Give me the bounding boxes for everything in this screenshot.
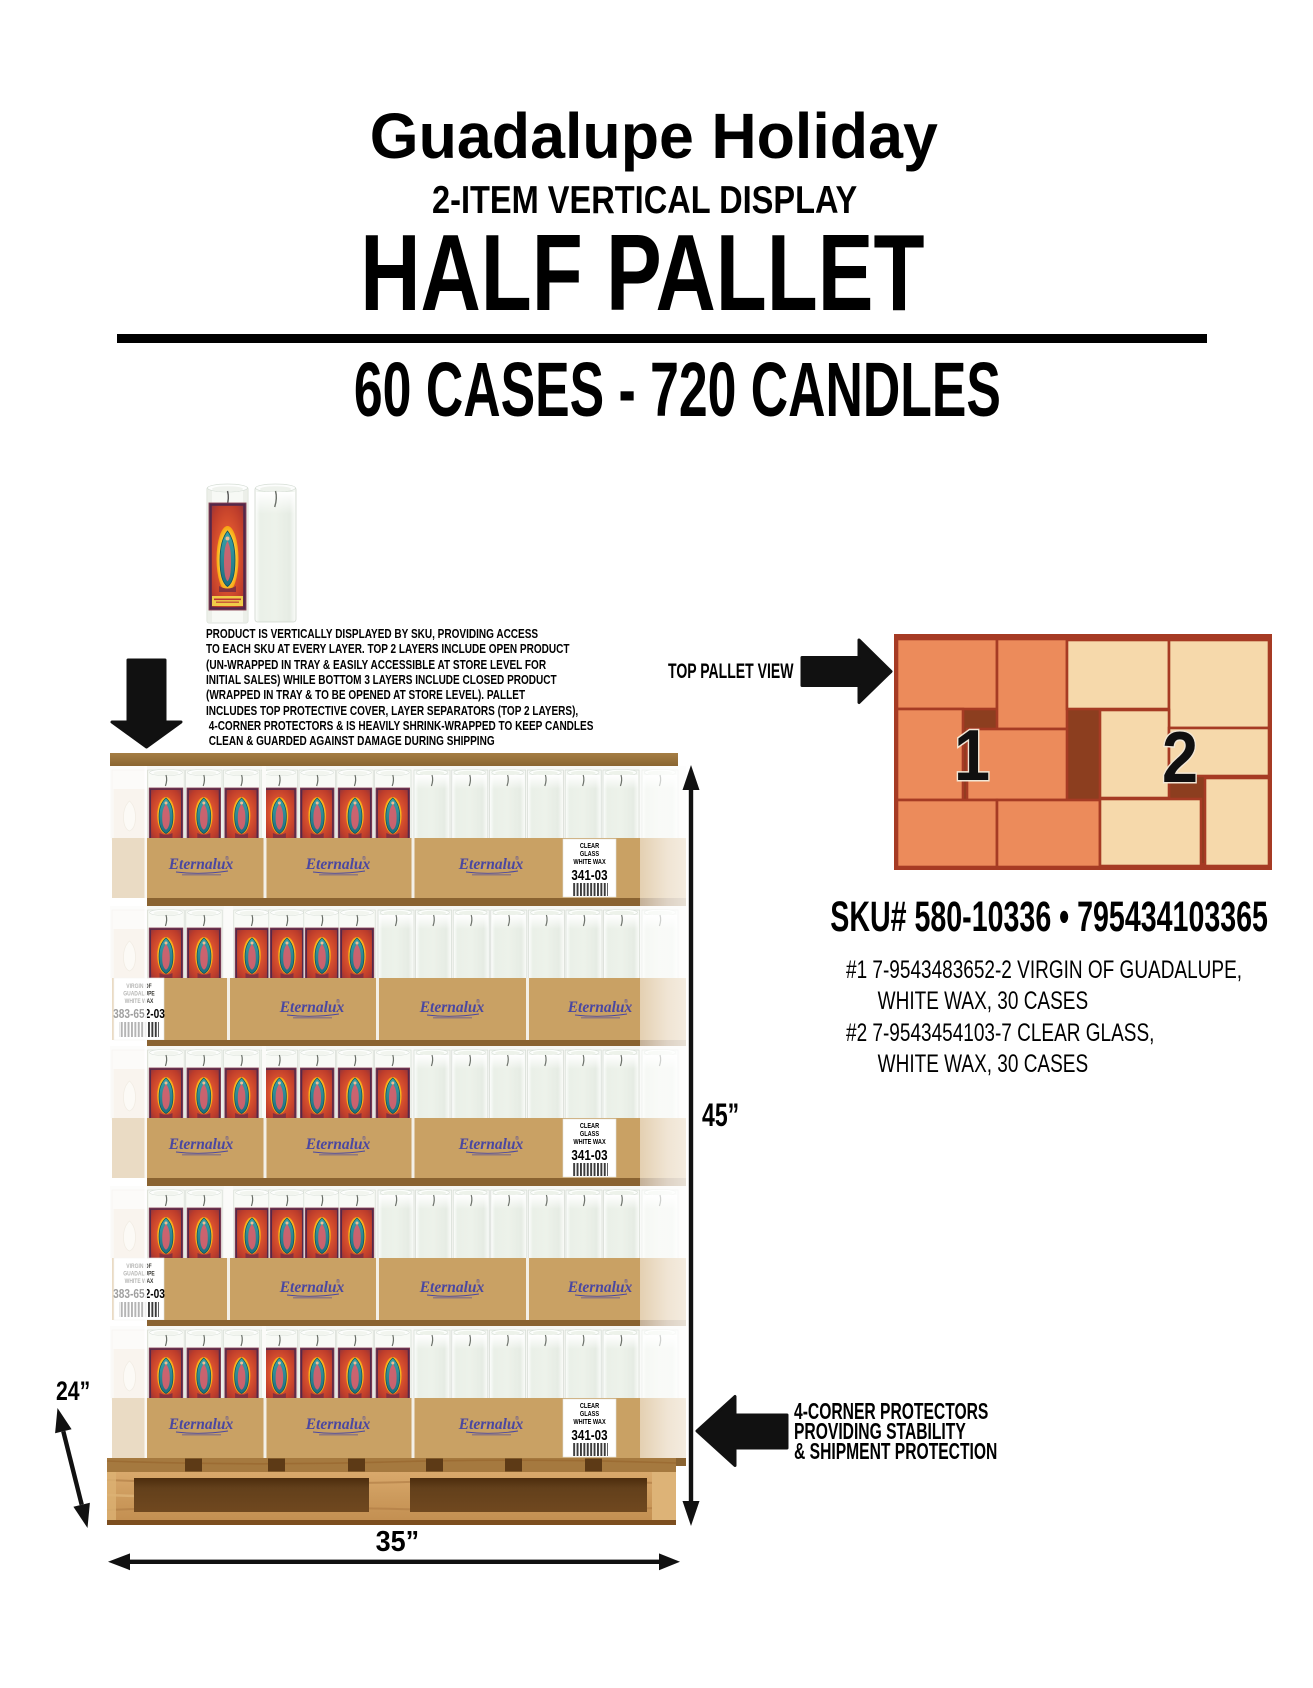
svg-text:Eternalux: Eternalux — [305, 1136, 371, 1153]
svg-text:1: 1 — [954, 715, 990, 796]
svg-text:Eternalux: Eternalux — [305, 856, 371, 873]
svg-text:WHITE WAX: WHITE WAX — [573, 1418, 606, 1426]
svg-text:Eternalux: Eternalux — [168, 856, 234, 873]
svg-text:®: ® — [362, 1135, 366, 1142]
svg-text:Eternalux: Eternalux — [279, 1279, 345, 1296]
svg-text:Eternalux: Eternalux — [419, 1279, 485, 1296]
svg-text:GLASS: GLASS — [580, 1130, 600, 1138]
svg-text:®: ® — [225, 1415, 229, 1422]
svg-text:GLASS: GLASS — [580, 850, 600, 858]
svg-text:®: ® — [362, 855, 366, 862]
svg-text:Eternalux: Eternalux — [567, 1279, 633, 1296]
svg-text:®: ® — [225, 1135, 229, 1142]
svg-text:Eternalux: Eternalux — [567, 999, 633, 1016]
svg-text:GLASS: GLASS — [580, 1410, 600, 1418]
svg-text:Eternalux: Eternalux — [168, 1136, 234, 1153]
svg-text:®: ® — [624, 998, 628, 1005]
svg-text:®: ® — [336, 1278, 340, 1285]
svg-text:341-03: 341-03 — [571, 1147, 607, 1164]
svg-text:®: ® — [515, 1135, 519, 1142]
svg-text:Eternalux: Eternalux — [305, 1416, 371, 1433]
svg-text:Eternalux: Eternalux — [458, 1136, 524, 1153]
svg-text:Eternalux: Eternalux — [458, 1416, 524, 1433]
svg-text:CLEAR: CLEAR — [580, 1402, 600, 1410]
svg-text:®: ® — [225, 855, 229, 862]
svg-text:®: ® — [624, 1278, 628, 1285]
svg-text:Eternalux: Eternalux — [458, 856, 524, 873]
svg-text:Eternalux: Eternalux — [419, 999, 485, 1016]
svg-text:Eternalux: Eternalux — [168, 1416, 234, 1433]
svg-text:341-03: 341-03 — [571, 1427, 607, 1444]
svg-text:®: ® — [515, 855, 519, 862]
svg-text:®: ® — [336, 998, 340, 1005]
svg-text:2: 2 — [1162, 717, 1198, 798]
svg-text:CLEAR: CLEAR — [580, 1122, 600, 1130]
svg-text:®: ® — [476, 998, 480, 1005]
svg-text:CLEAR: CLEAR — [580, 842, 600, 850]
svg-text:341-03: 341-03 — [571, 867, 607, 884]
svg-text:WHITE WAX: WHITE WAX — [573, 1138, 606, 1146]
svg-text:®: ® — [362, 1415, 366, 1422]
svg-text:WHITE WAX: WHITE WAX — [573, 858, 606, 866]
svg-text:®: ® — [476, 1278, 480, 1285]
svg-text:Eternalux: Eternalux — [279, 999, 345, 1016]
svg-text:®: ® — [515, 1415, 519, 1422]
